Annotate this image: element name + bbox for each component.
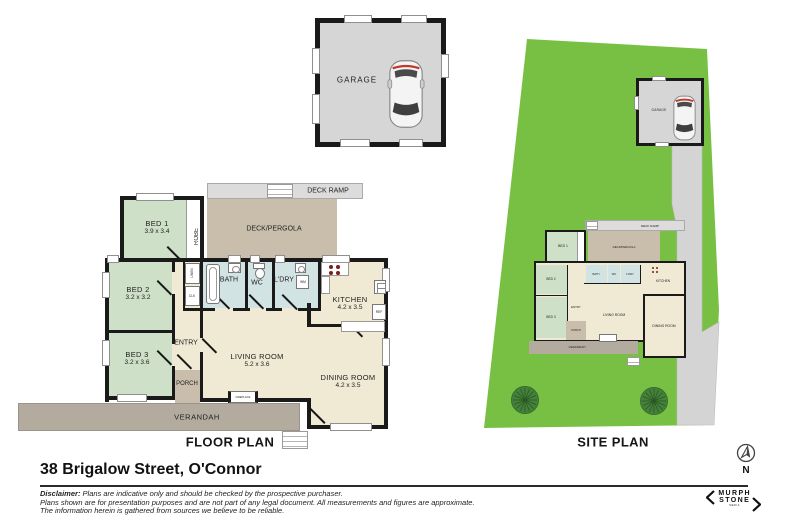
site-deck-pergola-label: DECK/PERGOLA [613, 245, 636, 248]
wall [584, 283, 641, 284]
cooktop-icon [329, 265, 333, 269]
window [312, 48, 320, 74]
deck-ramp-steps [267, 184, 293, 198]
window [275, 255, 285, 263]
clk-label: CLK [189, 294, 195, 298]
basin-icon [228, 263, 241, 273]
sink-icon [374, 280, 386, 294]
disclaimer-line3: The information herein is gathered from … [40, 507, 475, 516]
kitchen-bench [341, 321, 385, 332]
car-icon [387, 58, 425, 130]
window [441, 54, 449, 78]
wall [536, 295, 567, 296]
window [344, 15, 372, 23]
logo: MURPH STONE MEDIA [706, 488, 762, 522]
wc-label: WC [251, 280, 263, 287]
tree-icon [641, 388, 668, 415]
compass-icon [733, 443, 759, 463]
bath-label: BATH [220, 277, 238, 284]
kitchen-counter [321, 276, 330, 294]
wall [266, 308, 282, 311]
wall [233, 308, 250, 311]
robe-label: ROBE [194, 228, 200, 245]
window [250, 255, 260, 263]
kitchen-label: KITCHEN 4.2 x 3.5 [332, 295, 367, 311]
wall [183, 308, 215, 311]
compass: N [733, 443, 759, 476]
window [136, 193, 174, 201]
garage-room [315, 18, 446, 147]
chevron-right-icon [752, 497, 761, 512]
deck-pergola-label: DECK/PERGOLA [246, 226, 301, 233]
disclaimer: Disclaimer: Plans are indicative only an… [40, 490, 475, 516]
compass-north-label: N [733, 465, 759, 476]
verandah-area [18, 403, 300, 431]
linen-label: LINEN [190, 268, 194, 277]
window [382, 338, 390, 366]
window [401, 15, 427, 23]
cooktop-icon [336, 271, 340, 275]
cooktop-icon [329, 271, 333, 275]
wall [311, 324, 341, 327]
site-bed3-label: BED 3 [546, 315, 555, 319]
site-deck-ramp-label: DECK RAMP [641, 224, 659, 227]
wall [200, 262, 203, 310]
entry-label: ENTRY [174, 340, 198, 347]
tree-icon [512, 387, 539, 414]
window [228, 255, 241, 263]
wall [109, 330, 172, 333]
logo-text: MURPH STONE MEDIA [717, 490, 752, 513]
bed3-label: BED 3 3.2 x 3.6 [125, 350, 150, 366]
cooktop-icon [656, 271, 658, 273]
site-porch-label: PORCH [571, 329, 581, 332]
window [634, 96, 639, 110]
car-icon [672, 94, 697, 142]
cooktop-icon [652, 267, 654, 269]
laundry-trough-icon [295, 263, 306, 273]
floor-plan-title: FLOOR PLAN [186, 435, 275, 450]
bed1-label: BED 1 3.9 x 3.4 [145, 219, 170, 235]
wall [172, 294, 175, 344]
logo-line1: MURPH [717, 490, 752, 497]
garage-label: GARAGE [337, 76, 377, 85]
site-bed1-label: BED 1 [558, 244, 568, 248]
window [340, 139, 370, 147]
site-living-label: LIVING ROOM [603, 313, 625, 317]
site-plan-title: SITE PLAN [577, 435, 649, 450]
site-dining-label: DINING ROOM [652, 324, 675, 328]
fireplace-label: FIREPLACE [236, 396, 251, 399]
site-deck-ramp [585, 220, 685, 231]
plan-sheet: GARAGE DECK RAMP DECK/PERGOLA ROBE BED 1… [0, 0, 790, 527]
site-ramp-steps [586, 221, 598, 230]
window [652, 76, 666, 81]
site-garage-label: GARAGE [652, 108, 667, 112]
ref-label: REF [376, 310, 382, 314]
wall [200, 310, 203, 338]
kitchen-counter [321, 262, 349, 276]
site-bed2-label: BED 2 [546, 277, 555, 281]
wall [183, 262, 185, 308]
window [107, 255, 119, 263]
window [655, 142, 669, 147]
wall [245, 262, 248, 308]
wall [172, 366, 175, 400]
site-steps [627, 357, 640, 366]
divider [40, 485, 748, 487]
verandah-label: VERANDAH [174, 413, 220, 422]
logo-line2: STONE [717, 497, 752, 504]
cooktop-icon [336, 265, 340, 269]
bathtub-icon [206, 264, 220, 304]
wall [272, 262, 275, 308]
site-wc-label: WC [612, 272, 617, 275]
ldry-label: L'DRY [274, 277, 294, 284]
site-bath-label: BATH [592, 272, 599, 275]
site-fireplace [599, 334, 617, 342]
toilet-bowl-icon [255, 268, 265, 279]
site-ldry-label: L'DRY [626, 272, 634, 275]
steps [282, 431, 308, 449]
window [102, 272, 110, 298]
site-entry-label: ENTRY [571, 305, 581, 308]
bed2-label: BED 2 3.2 x 3.2 [126, 285, 151, 301]
wall [200, 352, 203, 400]
wm-label: WM [300, 280, 306, 284]
wall [172, 262, 175, 272]
wall [307, 398, 311, 425]
porch-label: PORCH [176, 381, 198, 387]
site-verandah-label: VERANDAH [569, 345, 586, 348]
chevron-left-icon [706, 490, 715, 505]
window [312, 94, 320, 124]
living-label: LIVING ROOM 5.2 x 3.6 [230, 352, 283, 368]
dining-label: DINING ROOM 4.2 x 3.5 [321, 373, 376, 389]
logo-sub: MEDIA [729, 504, 740, 507]
deck-ramp-label: DECK RAMP [307, 188, 349, 195]
window [399, 139, 423, 147]
page-title: 38 Brigalow Street, O'Connor [40, 461, 262, 479]
window [117, 394, 147, 402]
wall [640, 265, 641, 283]
disclaimer-label: Disclaimer: [40, 489, 80, 498]
cooktop-icon [652, 271, 654, 273]
window [330, 423, 372, 431]
window [102, 340, 110, 366]
cooktop-icon [656, 267, 658, 269]
site-kitchen-label: KITCHEN [656, 279, 670, 283]
